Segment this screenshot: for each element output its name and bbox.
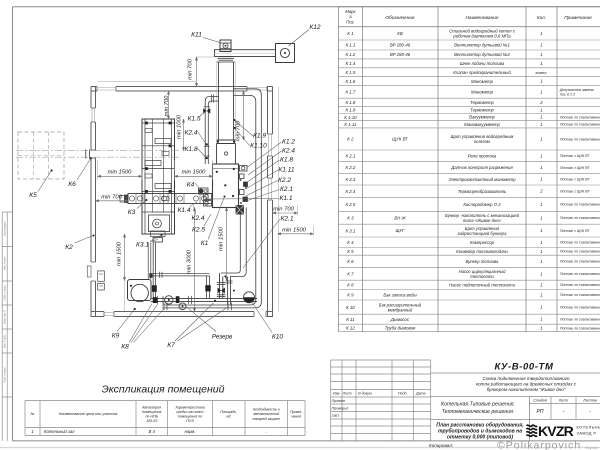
svg-text:К 7: К 7	[347, 271, 354, 276]
svg-text:Характеристика: Характеристика	[174, 405, 205, 409]
svg-text:К 9: К 9	[347, 292, 354, 297]
svg-text:типа «Живое дно»: типа «Живое дно»	[463, 218, 502, 223]
svg-text:К 11: К 11	[346, 317, 355, 322]
svg-text:К 1.5: К 1.5	[345, 70, 355, 75]
svg-text:Постав. по согласованию: Постав. по согласованию	[560, 272, 600, 276]
svg-text:К11: К11	[191, 32, 202, 39]
svg-text:Постав. по согласованию: Постав. по согласованию	[560, 115, 600, 119]
svg-text:Подп.: Подп.	[398, 392, 408, 396]
svg-text:Постав. с ЩУК ВТ: Постав. с ЩУК ВТ	[560, 166, 590, 170]
svg-text:К2: К2	[65, 244, 73, 251]
svg-text:План расстановки оборудования,: План расстановки оборудования,	[436, 422, 523, 429]
svg-text:по НПБ: по НПБ	[145, 415, 158, 419]
svg-text:Лист: Лист	[558, 399, 569, 403]
svg-text:ЗАВОД Р: ЗАВОД Р	[577, 431, 597, 436]
svg-text:Постав. по согласованию: Постав. по согласованию	[560, 216, 600, 220]
svg-text:К 6: К 6	[347, 259, 354, 264]
svg-text:min 700: min 700	[101, 194, 122, 200]
svg-text:К 4: К 4	[347, 240, 354, 245]
svg-text:К 1: К 1	[347, 31, 354, 36]
svg-text:К 3.1: К 3.1	[345, 228, 355, 233]
svg-text:Необходимость в: Необходимость в	[253, 408, 280, 412]
svg-text:Экспликация помещений: Экспликация помещений	[102, 384, 225, 396]
svg-text:К 2.4: К 2.4	[345, 189, 355, 194]
svg-text:К2.4: К2.4	[191, 215, 204, 222]
svg-text:Дымосос: Дымосос	[390, 317, 410, 322]
svg-text:Лист: Лист	[342, 392, 352, 396]
svg-text:м2: м2	[226, 415, 230, 419]
svg-text:К 1.8: К 1.8	[345, 100, 355, 105]
svg-text:К1.8: К1.8	[280, 157, 293, 164]
svg-text:Стадия: Стадия	[533, 399, 547, 403]
svg-text:К 1.1: К 1.1	[345, 43, 355, 48]
svg-text:Электроконтактный манометр: Электроконтактный манометр	[449, 177, 517, 182]
svg-text:ВР 280-46: ВР 280-46	[390, 52, 411, 57]
svg-text:Труба дымовая: Труба дымовая	[385, 326, 416, 331]
svg-text:К3: К3	[128, 209, 136, 216]
svg-text:КВ: КВ	[397, 31, 403, 36]
svg-text:min 1500: min 1500	[182, 170, 207, 176]
svg-text:Проект.: Проект.	[332, 399, 347, 403]
svg-text:Кислородомер О 2: Кислородомер О 2	[463, 202, 501, 207]
svg-text:бункером-накопителем ”Живое д: бункером-накопителем ”Живое дно”	[487, 387, 566, 392]
svg-text:К1.5: К1.5	[187, 116, 200, 123]
svg-text:трубопроводов и дымоходов на: трубопроводов и дымоходов на	[438, 428, 522, 435]
svg-text:Подп. и дата: Подп. и дата	[4, 367, 7, 383]
svg-text:Изм.: Изм.	[333, 392, 340, 396]
svg-text:Постав. по согласованию: Постав. по согласованию	[560, 203, 600, 207]
svg-text:№: №	[31, 412, 35, 416]
svg-text:Постав. по согласованию: Постав. по согласованию	[560, 241, 600, 245]
svg-text:Постав. по согласованию: Постав. по согласованию	[560, 293, 600, 297]
svg-text:Наименование: Наименование	[465, 15, 498, 21]
svg-text:среды или класс: среды или класс	[176, 410, 204, 414]
svg-text:К 12: К 12	[346, 326, 355, 331]
svg-text:К1.11: К1.11	[278, 167, 295, 174]
svg-text:Дата: Дата	[415, 392, 425, 396]
svg-text:Наименование цеха или участка: Наименование цеха или участка	[59, 412, 118, 416]
svg-text:min 700: min 700	[273, 207, 294, 213]
svg-text:ПУЭ: ПУЭ	[186, 419, 194, 423]
svg-text:Бак запаса воды: Бак запаса воды	[383, 292, 417, 297]
svg-text:Насос подпиточный теплосети: Насос подпиточный теплосети	[449, 282, 516, 287]
svg-text:БН-Ж: БН-Ж	[394, 215, 406, 220]
svg-text:Приме-: Приме-	[290, 410, 303, 414]
svg-text:К1.10: К1.10	[250, 143, 267, 150]
svg-text:Примечание: Примечание	[564, 15, 592, 21]
svg-text:Вентилятор дутьевой №2: Вентилятор дутьевой №2	[454, 52, 510, 57]
svg-text:Поз.: Поз.	[346, 20, 354, 25]
svg-text:К 1.4: К 1.4	[345, 61, 355, 66]
svg-text:мембранный: мембранный	[388, 307, 413, 312]
svg-text:К10: К10	[272, 334, 284, 341]
svg-text:Термометр: Термометр	[470, 100, 494, 105]
svg-text:KVZR: KVZR	[538, 423, 574, 439]
svg-text:рабочим давлением 0,6 МПа: рабочим давлением 0,6 МПа	[452, 34, 511, 39]
svg-text:Конвейер топливоподачи: Конвейер топливоподачи	[456, 249, 508, 254]
svg-text:КОТЕЛЬНЫЙ: КОТЕЛЬНЫЙ	[577, 425, 600, 430]
svg-text:К2.4: К2.4	[184, 130, 197, 137]
svg-text:Листов: Листов	[582, 399, 597, 403]
svg-text:Инв. N подл.: Инв. N подл.	[4, 256, 7, 270]
svg-text:норм.: норм.	[185, 429, 196, 434]
svg-text:Манометр: Манометр	[471, 79, 494, 84]
svg-text:Инв. N дубл.: Инв. N дубл.	[4, 334, 7, 348]
svg-text:Кол.: Кол.	[537, 15, 546, 20]
svg-text:компл.: компл.	[535, 70, 547, 75]
svg-text:Резерв: Резерв	[212, 334, 233, 341]
svg-text:К 2: К 2	[347, 137, 354, 142]
svg-text:min 700: min 700	[188, 58, 194, 79]
svg-text:Тепломеханические решения.: Тепломеханические решения.	[442, 409, 515, 415]
svg-text:Постав. с ЩУК ВТ: Постав. с ЩУК ВТ	[560, 154, 590, 158]
svg-text:Манометр: Манометр	[471, 90, 494, 95]
svg-text:Обозначение: Обозначение	[385, 15, 415, 21]
svg-text:Шнек подачи топлива: Шнек подачи топлива	[460, 61, 505, 66]
svg-text:Проверил: Проверил	[332, 407, 349, 411]
svg-text:Постав. с ЩУК ВТ: Постав. с ЩУК ВТ	[560, 189, 590, 193]
svg-text:чания: чания	[291, 415, 301, 419]
svg-text:Согласовано: Согласовано	[4, 221, 7, 236]
svg-text:105-03: 105-03	[146, 419, 157, 423]
svg-text:пожарной защите: пожарной защите	[252, 417, 280, 421]
svg-text:К 1.7: К 1.7	[345, 90, 355, 95]
svg-text:К 2.3: К 2.3	[345, 177, 355, 182]
svg-text:min 3000: min 3000	[187, 249, 193, 274]
svg-text:К 3: К 3	[347, 215, 354, 220]
svg-text:котла работающего на древесных: котла работающего на древесных отходах с	[476, 382, 577, 387]
svg-text:Формат: Формат	[585, 446, 599, 450]
svg-text:Площадь,: Площадь,	[220, 410, 237, 414]
svg-text:КУ-В-00-ТМ: КУ-В-00-ТМ	[494, 361, 554, 372]
svg-text:Термометр: Термометр	[470, 108, 494, 113]
svg-text:Клапан предохранительный: Клапан предохранительный	[453, 70, 511, 75]
svg-text:Допускается замена: Допускается замена	[559, 88, 594, 92]
svg-text:К 10: К 10	[346, 305, 355, 310]
svg-text:К 1.2: К 1.2	[345, 52, 355, 57]
svg-text:Термопреобразователь: Термопреобразователь	[458, 189, 507, 194]
svg-text:К 1.11: К 1.11	[344, 122, 357, 127]
svg-text:К 8: К 8	[347, 283, 354, 288]
svg-text:К7: К7	[167, 342, 175, 349]
svg-text:min 1500: min 1500	[282, 228, 307, 234]
svg-text:К4: К4	[187, 182, 195, 189]
svg-text:помещения по: помещения по	[178, 415, 202, 419]
svg-text:К 2.5: К 2.5	[345, 202, 355, 207]
svg-text:©Polikarpovich: ©Polikarpovich	[497, 440, 581, 450]
svg-text:К 1.6: К 1.6	[345, 79, 355, 84]
svg-text:К5: К5	[29, 192, 37, 199]
svg-text:Схема подключения твердотоплив: Схема подключения твердотопливного	[482, 376, 569, 381]
svg-text:Вентилятор дутьевой №1: Вентилятор дутьевой №1	[454, 43, 510, 48]
svg-text:Постав. по согласованию: Постав. по согласованию	[560, 326, 600, 330]
svg-text:К1.8: К1.8	[184, 146, 197, 153]
svg-text:ГИП: ГИП	[332, 414, 340, 418]
svg-text:Мановакуумметр: Мановакуумметр	[464, 122, 500, 127]
svg-text:N докум.: N докум.	[358, 392, 373, 396]
svg-text:Подп. и дата: Подп. и дата	[4, 285, 7, 301]
svg-text:котлом: котлом	[474, 139, 490, 144]
svg-text:К3.1: К3.1	[136, 242, 149, 249]
svg-text:Постав. по согласованию: Постав. по согласованию	[560, 305, 600, 309]
svg-text:Бункер топлива: Бункер топлива	[466, 259, 499, 264]
svg-text:К1.9: К1.9	[253, 133, 266, 140]
svg-text:поз. К 2.3: поз. К 2.3	[560, 93, 575, 97]
svg-text:РП: РП	[537, 409, 544, 415]
svg-text:К 1.9: К 1.9	[345, 108, 355, 113]
svg-text:Взам. инв. N: Взам. инв. N	[4, 310, 7, 324]
svg-text:Вакуумметр: Вакуумметр	[469, 115, 495, 120]
svg-text:помещения: помещения	[142, 410, 161, 414]
svg-text:К 1.10: К 1.10	[344, 115, 357, 120]
svg-text:К 5: К 5	[347, 249, 354, 254]
svg-text:К12: К12	[309, 24, 321, 31]
svg-text:Датчик контроля разряжения: Датчик контроля разряжения	[450, 165, 513, 170]
svg-text:Котельный зал: Котельный зал	[44, 429, 75, 434]
svg-text:К9: К9	[112, 333, 120, 340]
svg-text:Реле протока: Реле протока	[468, 153, 497, 158]
svg-text:Компрессор: Компрессор	[470, 240, 495, 245]
svg-text:К6: К6	[68, 181, 76, 188]
svg-text:min 1500: min 1500	[219, 226, 225, 251]
svg-text:Постав. по согласованию: Постав. по согласованию	[560, 250, 600, 254]
svg-text:ВР 280-46: ВР 280-46	[390, 43, 411, 48]
svg-text:Постав. по согласованию: Постав. по согласованию	[560, 123, 600, 127]
svg-text:К1: К1	[201, 240, 209, 247]
svg-text:Постав. по согласованию: Постав. по согласованию	[560, 283, 600, 287]
svg-text:К 2.1: К 2.1	[345, 154, 355, 159]
svg-text:теплосети: теплосети	[470, 274, 494, 279]
svg-text:Постав. с ЩУК ВТ: Постав. с ЩУК ВТ	[560, 229, 590, 233]
svg-text:К1.1: К1.1	[279, 195, 292, 202]
svg-text:К2.2: К2.2	[278, 177, 291, 184]
svg-text:min 1000: min 1000	[177, 114, 183, 139]
svg-text:min 700: min 700	[164, 95, 170, 116]
svg-text:автоматической: автоматической	[253, 412, 279, 416]
svg-text:Категория: Категория	[142, 405, 161, 409]
svg-text:К2.5: К2.5	[192, 227, 205, 234]
svg-text:гидростанцией бункера: гидростанцией бункера	[458, 231, 508, 236]
svg-text:Котельная.Типовые решения.: Котельная.Типовые решения.	[441, 402, 515, 408]
svg-text:Постав. по согласованию: Постав. по согласованию	[560, 137, 600, 141]
svg-text:ЩУГ: ЩУГ	[395, 228, 405, 233]
svg-text:1: 1	[31, 429, 33, 434]
svg-text:Копировал:: Копировал:	[429, 443, 454, 448]
svg-text:min 1500: min 1500	[117, 241, 123, 266]
svg-text:Постав. по согласованию: Постав. по согласованию	[560, 318, 600, 322]
svg-text:К1.4: К1.4	[177, 207, 190, 214]
svg-text:В 4: В 4	[149, 429, 156, 434]
svg-text:К2.1: К2.1	[280, 216, 293, 223]
svg-text:К2.4: К2.4	[282, 148, 295, 155]
svg-text:К2.1: К2.1	[280, 186, 293, 193]
svg-text:К1.2: К1.2	[282, 139, 295, 146]
svg-text:min 1500: min 1500	[108, 170, 133, 176]
svg-text:К 2.2: К 2.2	[345, 165, 355, 170]
svg-text:Постав. с ЩУК ВТ: Постав. с ЩУК ВТ	[560, 177, 590, 181]
svg-text:ЩУК ВТ: ЩУК ВТ	[392, 137, 408, 142]
svg-text:Постав. по согласованию: Постав. по согласованию	[560, 260, 600, 264]
svg-text:К8: К8	[121, 344, 129, 351]
